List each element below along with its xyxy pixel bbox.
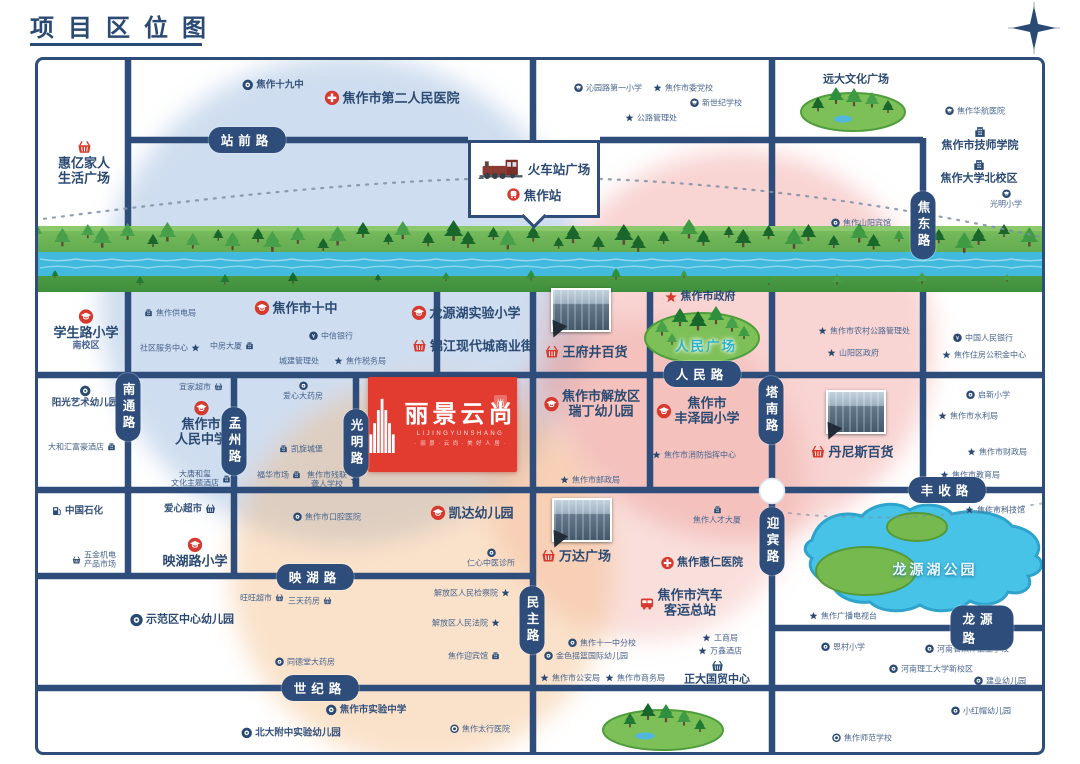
star-icon bbox=[818, 327, 827, 336]
map-poi: 焦作市邮政局 bbox=[560, 475, 620, 484]
poi-label: 仁心中医诊所 bbox=[467, 558, 515, 567]
project-seal: 尚 bbox=[494, 395, 507, 412]
station-plaza-label: 火车站广场 bbox=[528, 159, 591, 178]
poi-label: 焦作供电局 bbox=[156, 308, 196, 317]
poi-label: 焦作市商务局 bbox=[617, 673, 665, 682]
school-icon bbox=[1002, 189, 1011, 198]
road-pill: 孟州路 bbox=[222, 407, 247, 475]
star-icon bbox=[652, 451, 661, 460]
circle-icon bbox=[966, 391, 975, 400]
circle-icon bbox=[79, 385, 90, 396]
building-icon bbox=[974, 126, 987, 139]
map-poi: 映湖路小学 bbox=[162, 537, 227, 568]
poi-label: 焦作市残联聋人学校 bbox=[307, 471, 347, 490]
map-poi: 中国石化 bbox=[51, 505, 103, 516]
circle-icon bbox=[326, 704, 337, 715]
map-poi: 焦作市政府 bbox=[665, 291, 736, 304]
poi-label: 焦作市汽车客运总站 bbox=[657, 588, 722, 619]
school-icon bbox=[430, 505, 445, 520]
map-poi: 焦作市水利局 bbox=[938, 411, 998, 420]
map-poi: 金色摇篮国际幼儿园 bbox=[544, 651, 628, 660]
map-poi: 远大文化广场 bbox=[823, 74, 889, 87]
poi-label: 焦作市科技馆 bbox=[977, 505, 1025, 514]
poi-label: 中信银行 bbox=[321, 331, 353, 340]
building-icon bbox=[107, 443, 116, 452]
poi-label: 中房大厦 bbox=[210, 341, 242, 350]
school-icon bbox=[656, 404, 671, 419]
poi-label: 解放区人民检察院 bbox=[434, 588, 498, 597]
star-icon bbox=[967, 448, 976, 457]
circle-icon bbox=[299, 381, 308, 390]
poi-label: 解放区人民法院 bbox=[432, 618, 488, 627]
map-poi: 爱心超市 bbox=[164, 503, 216, 514]
basket-icon bbox=[810, 444, 825, 459]
map-poi: 丹尼斯百货 bbox=[810, 444, 893, 459]
school-icon bbox=[254, 300, 269, 315]
map-poi: 焦作市委党校 bbox=[653, 83, 713, 92]
poi-label: 沁园路第一小学 bbox=[586, 83, 642, 92]
map-poi: 阳光艺术幼儿园 bbox=[52, 385, 119, 408]
map-poi: 大和汇富豪酒店 bbox=[48, 442, 116, 451]
poi-label: 焦作市农村公路管理处 bbox=[830, 326, 910, 335]
poi-label: 焦作惠仁医院 bbox=[677, 557, 743, 570]
star-icon bbox=[809, 612, 818, 621]
basket-icon bbox=[544, 344, 559, 359]
page-title: 项目区位图 bbox=[30, 8, 220, 43]
map-poi: ¥中信银行 bbox=[309, 331, 353, 340]
star-icon bbox=[625, 114, 634, 123]
poi-label: 旺旺超市 bbox=[240, 593, 272, 602]
map-poi: 焦作市解放区瑞丁幼儿园 bbox=[544, 389, 640, 420]
star-icon bbox=[965, 506, 974, 515]
circle-icon bbox=[568, 639, 577, 648]
map-poi: 焦作市农村公路管理处 bbox=[818, 326, 910, 335]
map-poi: 焦作供电局 bbox=[144, 308, 196, 317]
road-pill: 世纪路 bbox=[282, 675, 359, 701]
school-icon bbox=[193, 401, 208, 416]
poi-label: 焦作市水利局 bbox=[950, 411, 998, 420]
gas-icon bbox=[51, 505, 62, 516]
circle-icon bbox=[951, 707, 960, 716]
road-pill: 龙源路 bbox=[951, 606, 1014, 651]
map-poi: 解放区人民法院 bbox=[432, 618, 500, 627]
map-poi: 福华市场 bbox=[257, 470, 301, 479]
map-poi: 焦作市口腔医院 bbox=[293, 512, 361, 521]
map-poi: 焦作市第二人民医院 bbox=[324, 90, 459, 105]
star-icon bbox=[501, 589, 510, 598]
location-map-page: 项目区位图 bbox=[0, 0, 1080, 764]
poi-label: 焦作市财政局 bbox=[979, 447, 1027, 456]
poi-label: 光明小学 bbox=[990, 199, 1022, 208]
poi-label: 焦作市第二人民医院 bbox=[342, 90, 459, 105]
poi-label: 大和汇富豪酒店 bbox=[48, 442, 104, 451]
map-poi: 焦作十九中 bbox=[242, 79, 304, 90]
road-pill: 人民路 bbox=[664, 361, 741, 387]
map-poi: 焦作惠仁医院 bbox=[661, 557, 743, 570]
building-icon bbox=[245, 342, 254, 351]
poi-label: 焦作市口腔医院 bbox=[305, 512, 361, 521]
poi-label: 凯旋城堡 bbox=[291, 444, 323, 453]
map-poi: 焦作市人民中学 bbox=[175, 401, 227, 448]
map-poi: 旺旺超市 bbox=[240, 593, 284, 602]
poi-label: 焦作广播电视台 bbox=[821, 611, 877, 620]
map-poi: 沁园路第一小学 bbox=[574, 83, 642, 92]
map-poi: 焦作市财政局 bbox=[967, 447, 1027, 456]
poi-label: 启新小学 bbox=[978, 390, 1010, 399]
poi-label: 焦作华航医院 bbox=[957, 106, 1005, 115]
circle2-icon bbox=[450, 725, 459, 734]
poi-label: 公路管理处 bbox=[637, 113, 677, 122]
star-icon bbox=[698, 647, 707, 656]
poi-label: 焦作市委党校 bbox=[665, 83, 713, 92]
poi-label: 学生路小学南校区 bbox=[53, 325, 118, 351]
poi-label: 工商局 bbox=[714, 633, 738, 642]
map-poi: 启新小学 bbox=[966, 390, 1010, 399]
map-poi: 正大国贸中心 bbox=[684, 660, 750, 687]
poi-label: 焦作市人民中学 bbox=[175, 417, 227, 448]
star-icon bbox=[334, 357, 343, 366]
map-poi: 焦作迎宾馆 bbox=[448, 651, 500, 660]
star-icon bbox=[653, 84, 662, 93]
road-pill: 焦东路 bbox=[911, 191, 936, 259]
train-station-box: 火车站广场 焦作站 bbox=[468, 140, 600, 218]
poi-label: 焦作市消防指挥中心 bbox=[664, 450, 736, 459]
star-icon bbox=[827, 349, 836, 358]
road-pill: 站前路 bbox=[209, 127, 286, 153]
building-icon bbox=[279, 445, 288, 454]
wanda-photo bbox=[552, 498, 612, 542]
road-pill: 迎宾路 bbox=[760, 507, 785, 575]
dennis-photo bbox=[826, 390, 886, 434]
train-icon bbox=[478, 155, 524, 183]
map-poi: 光明小学 bbox=[990, 189, 1022, 208]
project-marker: 丽景云尚 LIJINGYUNSHANG · 丽 景 · 云 尚 · 美 好 人 … bbox=[368, 377, 517, 472]
poi-label: 阳光艺术幼儿园 bbox=[52, 397, 119, 408]
bank-icon: ¥ bbox=[953, 334, 962, 343]
star-icon bbox=[702, 634, 711, 643]
circle-icon bbox=[275, 658, 284, 667]
school-icon bbox=[945, 107, 954, 116]
map-canvas: 火车站广场 焦作站 bbox=[35, 57, 1045, 755]
map-poi: 焦作市消防指挥中心 bbox=[652, 450, 736, 459]
building-icon bbox=[222, 475, 231, 484]
bank-icon: ¥ bbox=[309, 332, 318, 341]
basket-icon bbox=[541, 548, 556, 563]
poi-label: 新世纪学校 bbox=[702, 98, 742, 107]
map-poi: 公路管理处 bbox=[625, 113, 677, 122]
compass-icon bbox=[1004, 2, 1064, 59]
map-poi: 焦作师范学校 bbox=[832, 733, 892, 742]
poi-label: 爱心大药房 bbox=[283, 391, 323, 400]
map-poi: 示范区中心幼儿园 bbox=[130, 614, 234, 627]
star-icon bbox=[605, 674, 614, 683]
map-poi: 建业幼儿园 bbox=[974, 676, 1026, 685]
basket-icon bbox=[205, 503, 216, 514]
star-icon bbox=[191, 344, 200, 353]
school-icon bbox=[690, 99, 699, 108]
basket-icon bbox=[76, 140, 91, 155]
building-icon bbox=[491, 652, 500, 661]
poi-label: 示范区中心幼儿园 bbox=[146, 614, 234, 627]
poi-label: 焦作市十中 bbox=[272, 300, 337, 315]
poi-label: 中国石化 bbox=[65, 505, 103, 516]
poi-label: 焦作市公安局 bbox=[552, 673, 600, 682]
poi-sublabel: 南校区 bbox=[53, 340, 118, 351]
poi-label: 小红帽幼儿园 bbox=[963, 706, 1011, 715]
map-poi: ¥中国人民银行 bbox=[953, 333, 1013, 342]
rail-circle-icon bbox=[507, 188, 520, 201]
map-poi: 恩村小学 bbox=[821, 642, 865, 651]
map-poi: 焦作市汽车客运总站 bbox=[639, 588, 722, 619]
poi-label: 福华市场 bbox=[257, 470, 289, 479]
poi-label: 焦作十九中 bbox=[256, 79, 304, 90]
star-icon bbox=[350, 476, 359, 485]
road-pill: 民主路 bbox=[520, 586, 545, 654]
star-icon bbox=[491, 619, 500, 628]
building-icon bbox=[144, 309, 153, 318]
poi-label: 恩村小学 bbox=[833, 642, 865, 651]
map-poi: 社区服务中心 bbox=[140, 343, 200, 352]
map-poi: 大唐和玺文化主题酒店 bbox=[171, 470, 231, 489]
circle-icon bbox=[831, 219, 840, 228]
map-poi: 小红帽幼儿园 bbox=[951, 706, 1011, 715]
circle-icon bbox=[889, 665, 898, 674]
poi-label: 城建管理处 bbox=[279, 356, 319, 365]
circle-icon bbox=[130, 614, 143, 627]
map-poi: 三天药房 bbox=[288, 596, 332, 605]
map-poi: 焦作市科技馆 bbox=[965, 505, 1025, 514]
circle-icon bbox=[487, 548, 496, 557]
poi-label: 同德堂大药房 bbox=[287, 657, 335, 666]
road-pill: 丰收路 bbox=[909, 477, 986, 503]
star-icon bbox=[665, 291, 678, 304]
school-icon bbox=[411, 305, 426, 320]
map-poi: 焦作大学北校区 bbox=[941, 159, 1018, 186]
map-poi: 龙源湖实验小学 bbox=[411, 305, 520, 320]
map-poi: 龙源湖公园 bbox=[893, 562, 978, 579]
basket-icon bbox=[412, 338, 427, 353]
circle-icon bbox=[821, 643, 830, 652]
poi-label: 焦作迎宾馆 bbox=[448, 651, 488, 660]
circle-icon bbox=[242, 79, 253, 90]
poi-label: 社区服务中心 bbox=[140, 343, 188, 352]
star-icon bbox=[938, 412, 947, 421]
poi-label: 北大附中实验幼儿园 bbox=[255, 727, 341, 738]
poi-label: 三天药房 bbox=[288, 596, 320, 605]
road-pill: 塔南路 bbox=[759, 376, 784, 444]
poi-label: 爱心超市 bbox=[164, 503, 202, 514]
poi-label: 映湖路小学 bbox=[162, 553, 227, 568]
map-poi: 焦作广播电视台 bbox=[809, 611, 877, 620]
poi-label: 焦作山阳宾馆 bbox=[843, 218, 891, 227]
poi-label: 山阳区政府 bbox=[839, 348, 879, 357]
basket-icon bbox=[275, 594, 284, 603]
poi-label: 焦作人才大厦 bbox=[693, 515, 741, 524]
circle-icon bbox=[293, 513, 302, 522]
circle-icon bbox=[974, 677, 983, 686]
poi-label: 焦作市技师学院 bbox=[942, 140, 1019, 153]
map-poi: 焦作市技师学院 bbox=[942, 126, 1019, 153]
map-poi: 北大附中实验幼儿园 bbox=[241, 727, 341, 738]
map-poi: 五金机电产品市场 bbox=[72, 551, 116, 570]
star-icon bbox=[560, 476, 569, 485]
map-poi: 焦作十一中分校 bbox=[568, 638, 636, 647]
poi-label: 焦作市政府 bbox=[681, 291, 736, 304]
project-logo-icon bbox=[369, 397, 397, 453]
circle-icon bbox=[544, 652, 553, 661]
poi-label: 惠亿家人生活广场 bbox=[58, 156, 110, 187]
poi-label: 锦江现代城商业街 bbox=[430, 338, 534, 353]
poi-label: 金色摇篮国际幼儿园 bbox=[556, 651, 628, 660]
circle-icon bbox=[925, 645, 934, 654]
road-pill: 南通路 bbox=[116, 373, 141, 441]
poi-label: 正大国贸中心 bbox=[684, 674, 750, 687]
poi-label: 焦作十一中分校 bbox=[580, 638, 636, 647]
poi-label: 焦作大学北校区 bbox=[941, 173, 1018, 186]
basket-icon bbox=[72, 556, 81, 565]
map-poi: 爱心大药房 bbox=[283, 381, 323, 400]
poi-label: 远大文化广场 bbox=[823, 74, 889, 87]
map-poi: 山阳区政府 bbox=[827, 348, 879, 357]
map-poi: 学生路小学南校区 bbox=[53, 309, 118, 351]
poi-label: 龙源湖实验小学 bbox=[429, 305, 520, 320]
poi-label: 龙源湖公园 bbox=[893, 562, 978, 579]
map-poi: 焦作市商务局 bbox=[605, 673, 665, 682]
poi-label: 大唐和玺文化主题酒店 bbox=[171, 470, 219, 489]
poi-label: 焦作住房公积金中心 bbox=[954, 350, 1026, 359]
building-icon bbox=[713, 505, 722, 514]
poi-label: 中国人民银行 bbox=[965, 333, 1013, 342]
map-poi: 万达广场 bbox=[541, 548, 611, 563]
title-underline bbox=[30, 43, 202, 46]
map-poi: 宜家超市 bbox=[179, 382, 223, 391]
school-icon bbox=[544, 397, 559, 412]
star-icon bbox=[942, 351, 951, 360]
poi-label: 焦作市解放区瑞丁幼儿园 bbox=[562, 389, 640, 420]
basket-icon bbox=[711, 660, 724, 673]
map-poi: 凯达幼儿园 bbox=[430, 505, 513, 520]
map-poi: 焦作市公安局 bbox=[540, 673, 600, 682]
bus-icon bbox=[639, 596, 654, 611]
wangfujing-photo bbox=[551, 288, 611, 332]
poi-label: 建业幼儿园 bbox=[986, 676, 1026, 685]
poi-label: 凯达幼儿园 bbox=[448, 505, 513, 520]
hospital-icon bbox=[324, 90, 339, 105]
map-poi: 锦江现代城商业街 bbox=[412, 338, 534, 353]
circle2-icon bbox=[832, 734, 841, 743]
basket-icon bbox=[214, 383, 223, 392]
map-poi: 焦作山阳宾馆 bbox=[831, 218, 891, 227]
map-poi: 仁心中医诊所 bbox=[467, 548, 515, 567]
station-name-label: 焦作站 bbox=[524, 185, 562, 204]
circle-icon bbox=[241, 727, 252, 738]
hospital-icon bbox=[661, 557, 674, 570]
project-tagline: · 丽 景 · 云 尚 · 美 好 人 居 · bbox=[415, 439, 506, 447]
road-pill: 映湖路 bbox=[277, 564, 354, 590]
map-poi: 惠亿家人生活广场 bbox=[58, 140, 110, 187]
map-poi: 解放区人民检察院 bbox=[434, 588, 510, 597]
map-poi: 焦作住房公积金中心 bbox=[942, 350, 1026, 359]
map-poi: 焦作华航医院 bbox=[945, 106, 1005, 115]
poi-label: 焦作市实验中学 bbox=[340, 704, 407, 715]
poi-label: 宜家超市 bbox=[179, 382, 211, 391]
map-poi: 焦作市实验中学 bbox=[326, 704, 407, 715]
map-poi: 焦作太行医院 bbox=[450, 724, 510, 733]
road-pill: 光明路 bbox=[344, 409, 369, 477]
map-poi: 人民广场 bbox=[675, 339, 737, 355]
poi-label: 王府井百货 bbox=[562, 344, 627, 359]
building-icon bbox=[973, 159, 986, 172]
map-poi: 凯旋城堡 bbox=[279, 444, 323, 453]
poi-label: 万鑫酒店 bbox=[710, 646, 742, 655]
poi-label: 河南理工大学新校区 bbox=[901, 664, 973, 673]
school-icon bbox=[574, 84, 583, 93]
school-icon bbox=[187, 537, 202, 552]
map-poi: 焦作市十中 bbox=[254, 300, 337, 315]
poi-label: 焦作太行医院 bbox=[462, 724, 510, 733]
poi-label: 万达广场 bbox=[559, 548, 611, 563]
map-poi: 王府井百货 bbox=[544, 344, 627, 359]
map-poi: 同德堂大药房 bbox=[275, 657, 335, 666]
map-poi: 万鑫酒店 bbox=[698, 646, 742, 655]
poi-label: 焦作师范学校 bbox=[844, 733, 892, 742]
poi-label: 焦作税务局 bbox=[346, 356, 386, 365]
basket-icon bbox=[323, 597, 332, 606]
map-poi: 工商局 bbox=[702, 633, 738, 642]
poi-label: 焦作市丰泽园小学 bbox=[674, 396, 739, 427]
map-poi: 城建管理处 bbox=[279, 356, 319, 365]
project-pinyin: LIJINGYUNSHANG bbox=[417, 431, 505, 437]
poi-label: 丹尼斯百货 bbox=[828, 444, 893, 459]
poi-label: 焦作市邮政局 bbox=[572, 475, 620, 484]
school-icon bbox=[78, 309, 93, 324]
building-icon bbox=[292, 471, 301, 480]
map-poi: 河南理工大学新校区 bbox=[889, 664, 973, 673]
star-icon bbox=[540, 674, 549, 683]
map-poi: 焦作市丰泽园小学 bbox=[656, 396, 739, 427]
map-poi: 焦作税务局 bbox=[334, 356, 386, 365]
map-poi: 焦作人才大厦 bbox=[693, 505, 741, 524]
poi-label: 五金机电产品市场 bbox=[84, 551, 116, 570]
map-poi: 中房大厦 bbox=[210, 341, 254, 350]
poi-label: 人民广场 bbox=[675, 339, 737, 355]
map-poi: 新世纪学校 bbox=[690, 98, 742, 107]
